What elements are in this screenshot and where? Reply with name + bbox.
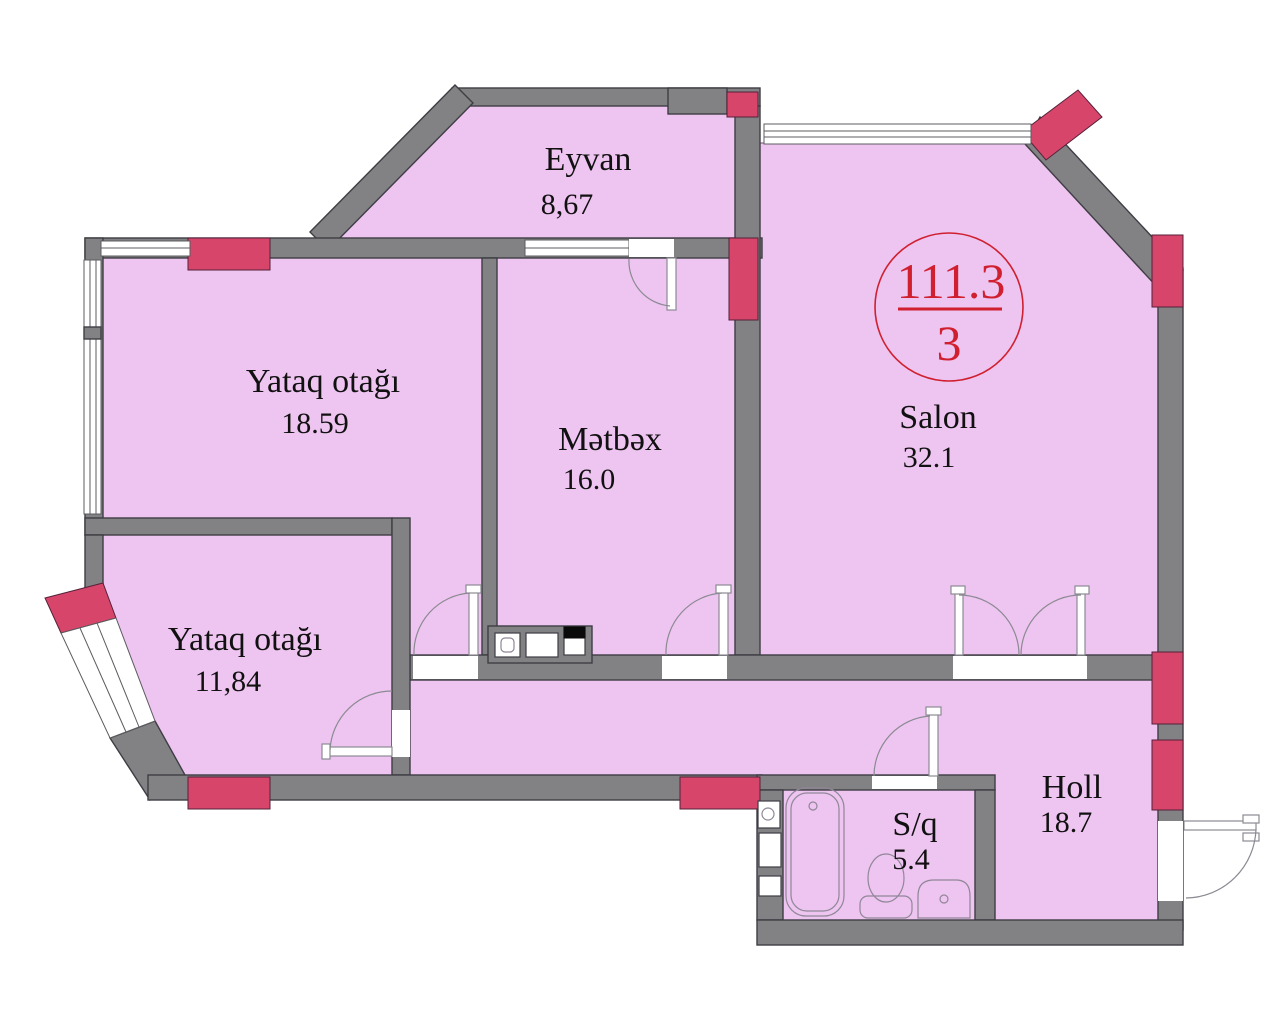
label-kitchen-area: 16.0 xyxy=(563,463,616,496)
accent-eyvan-corner xyxy=(727,92,758,117)
label-bedroom2-name: Yataq otağı xyxy=(168,621,322,658)
accent-salon-right-lower xyxy=(1152,652,1183,724)
door-opening-bathroom xyxy=(872,776,937,789)
window-salon-top xyxy=(764,124,1031,144)
wall-kitchen-salon xyxy=(735,106,760,655)
door-opening-salon xyxy=(953,656,1087,679)
accent-hall-right xyxy=(1152,740,1183,810)
wall-bedroom-divider xyxy=(85,518,392,535)
stamp-room-count: 3 xyxy=(937,315,962,371)
wall-bathroom-right xyxy=(975,790,995,920)
wall-bedroom1-kitchen xyxy=(482,258,497,655)
door-opening-entrance xyxy=(1158,821,1183,901)
window-bedroom1-left xyxy=(84,260,101,514)
stamp-total-area: 111.3 xyxy=(897,253,1006,309)
door-opening-bedroom1 xyxy=(413,656,478,679)
door-opening-bedroom2 xyxy=(392,710,410,757)
door-hinge-salon-right xyxy=(1075,586,1089,594)
label-eyvan-area: 8,67 xyxy=(541,188,594,221)
accent-kitchen-salon-wall xyxy=(729,238,758,320)
shaft-box-bottom xyxy=(759,876,781,896)
door-hinge-entrance xyxy=(1243,815,1259,823)
door-leaf-bedroom2 xyxy=(328,747,392,756)
radiator-bedroom1-top xyxy=(188,238,270,270)
door-opening-eyvan-kitchen xyxy=(629,239,674,257)
label-bathroom-name: S/q xyxy=(892,806,937,843)
door-hinge-kitchen xyxy=(716,585,731,593)
label-eyvan-name: Eyvan xyxy=(545,141,632,178)
door-hinge-bedroom2 xyxy=(322,744,330,759)
door-hinge-salon-left xyxy=(951,586,965,594)
floor-plan: 111.3 3 Eyvan 8,67 Yataq otağı 18.59 Mət… xyxy=(0,0,1280,1024)
door-leaf-salon-left xyxy=(955,593,963,655)
radiator-bedroom2-bottom xyxy=(188,777,270,809)
label-salon-area: 32.1 xyxy=(903,441,956,474)
door-hinge-entrance-b xyxy=(1243,833,1259,841)
label-bedroom1-area: 18.59 xyxy=(281,407,349,440)
door-leaf-bathroom xyxy=(929,714,938,776)
kitchen-sink-unit xyxy=(495,633,520,657)
label-salon-name: Salon xyxy=(899,399,976,436)
wall-bottom-right xyxy=(757,920,1183,945)
area-stamp: 111.3 3 xyxy=(875,233,1023,381)
kitchen-worktop xyxy=(526,633,558,657)
door-opening-kitchen xyxy=(662,656,727,679)
label-hall-name: Holl xyxy=(1042,769,1102,806)
door-hinge-bedroom1 xyxy=(466,585,481,593)
kitchen-stove-top xyxy=(564,627,585,638)
shaft-box-top xyxy=(758,801,780,828)
label-bedroom1-name: Yataq otağı xyxy=(246,363,400,400)
label-kitchen-name: Mətbəx xyxy=(558,421,662,458)
door-leaf-kitchen xyxy=(719,592,728,655)
wall-eyvan-top-step xyxy=(668,88,727,114)
label-hall-area: 18.7 xyxy=(1040,806,1093,839)
door-hinge-bathroom xyxy=(926,707,941,715)
door-leaf-eyvan-kitchen xyxy=(667,258,676,310)
shaft-box-mid xyxy=(759,833,781,867)
door-leaf-salon-right xyxy=(1077,593,1085,655)
label-bedroom2-area: 11,84 xyxy=(195,665,261,698)
door-leaf-bedroom1 xyxy=(469,592,478,655)
label-bathroom-area: 5.4 xyxy=(892,843,930,876)
accent-salon-right-upper xyxy=(1152,235,1183,307)
window-bedroom1-left-tick xyxy=(84,327,101,339)
radiator-corridor-bottom xyxy=(680,777,760,809)
